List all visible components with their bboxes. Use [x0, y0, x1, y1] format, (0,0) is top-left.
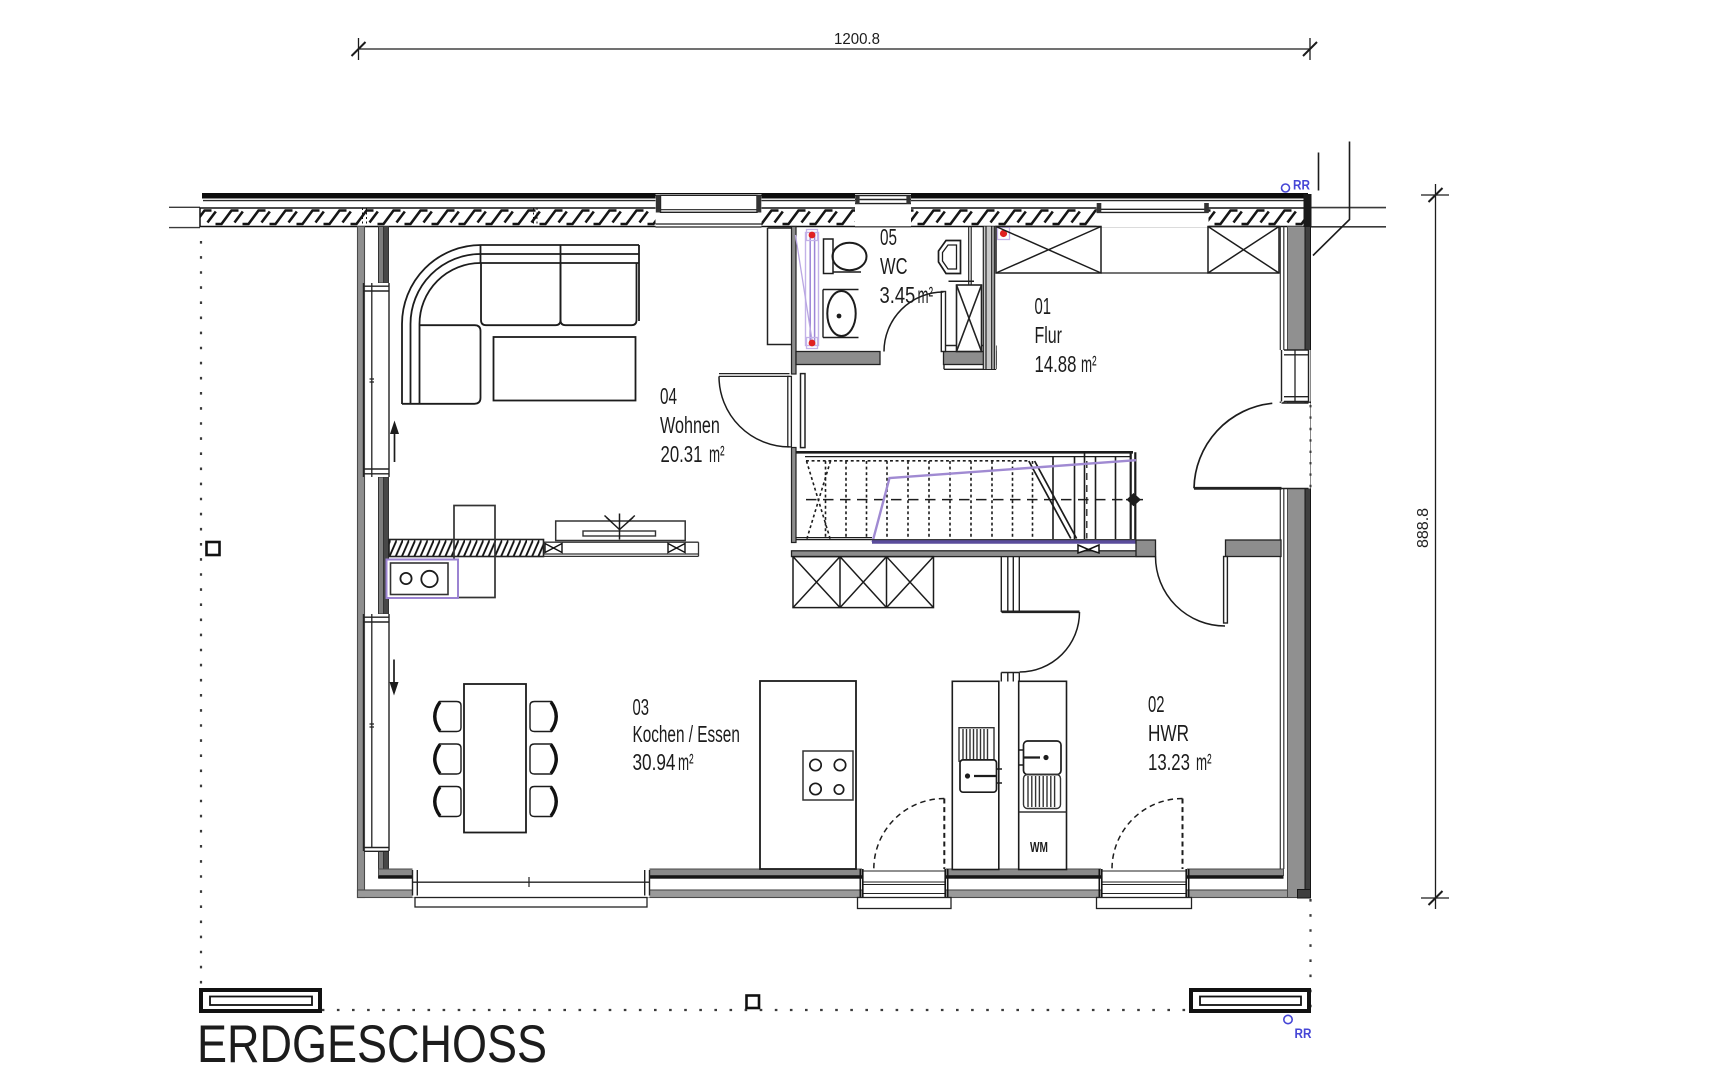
svg-text:04: 04 — [660, 384, 677, 410]
svg-text:WC: WC — [880, 254, 908, 279]
svg-text:m²: m² — [678, 749, 693, 775]
svg-text:Wohnen: Wohnen — [660, 413, 720, 438]
svg-text:03: 03 — [633, 695, 650, 721]
svg-text:1200.8: 1200.8 — [834, 31, 880, 49]
svg-text:RR: RR — [1295, 1025, 1313, 1041]
svg-text:ERDGESCHOSS: ERDGESCHOSS — [197, 1015, 547, 1074]
svg-text:Flur: Flur — [1035, 323, 1063, 349]
svg-text:888.8: 888.8 — [1415, 508, 1432, 548]
svg-text:Kochen / Essen: Kochen / Essen — [633, 722, 740, 748]
svg-text:30.94: 30.94 — [633, 751, 676, 776]
svg-text:m²: m² — [1196, 749, 1211, 775]
svg-text:m²: m² — [918, 282, 933, 308]
svg-text:HWR: HWR — [1148, 722, 1189, 747]
svg-text:05: 05 — [880, 225, 897, 251]
svg-text:m²: m² — [1081, 351, 1096, 377]
svg-text:01: 01 — [1035, 294, 1052, 320]
svg-text:RR: RR — [1293, 177, 1311, 193]
svg-text:m²: m² — [709, 441, 724, 467]
svg-text:3.45: 3.45 — [880, 283, 916, 308]
svg-text:WM: WM — [1030, 838, 1048, 856]
svg-text:02: 02 — [1148, 692, 1165, 718]
svg-text:20.31: 20.31 — [661, 443, 703, 468]
svg-text:13.23: 13.23 — [1148, 751, 1190, 776]
svg-text:14.88: 14.88 — [1035, 353, 1077, 378]
